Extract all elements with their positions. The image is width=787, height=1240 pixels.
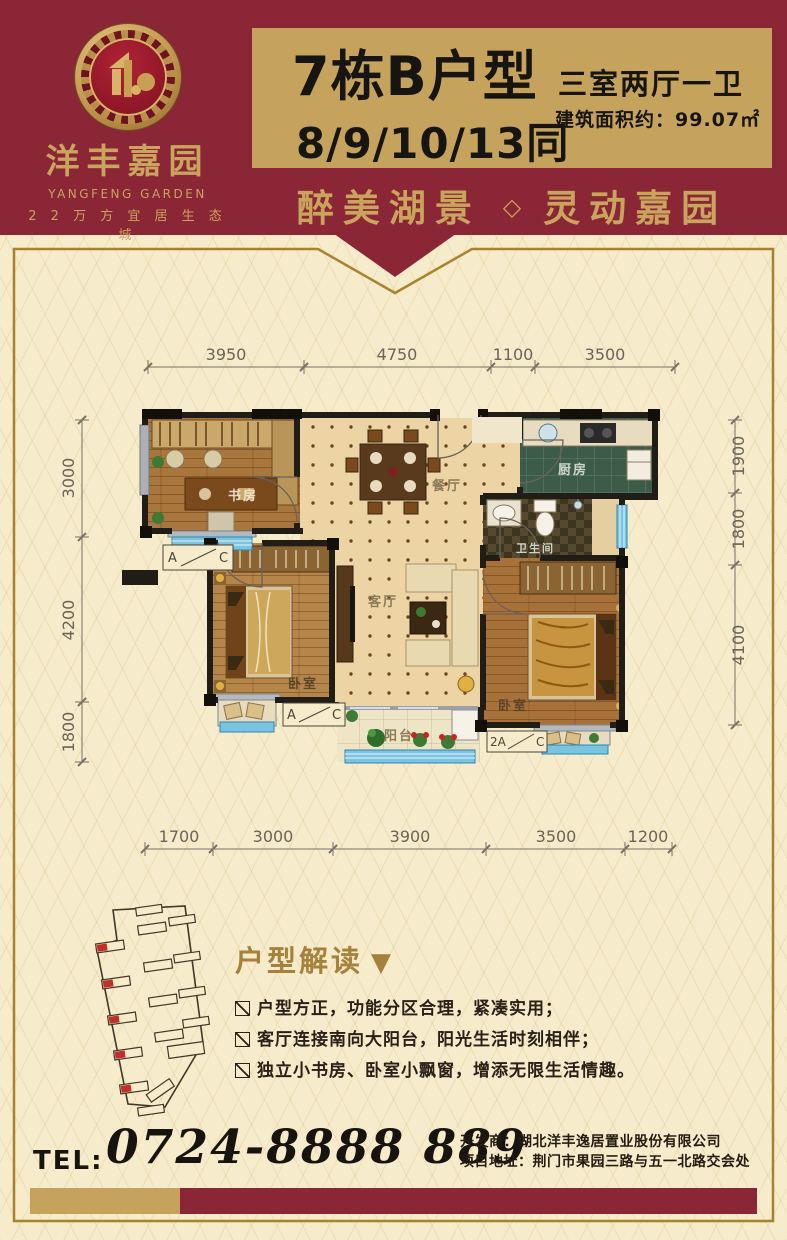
developer-line: 开发商：湖北洋丰逸居置业股份有限公司	[460, 1132, 760, 1152]
highlighted-building	[103, 979, 114, 987]
lamp-icon	[216, 682, 224, 690]
header-v-notch	[330, 231, 460, 277]
sofa-icon	[452, 570, 478, 666]
room-label-bedroom-right: 卧室	[498, 698, 528, 714]
room-label-balcony: 阳台	[384, 728, 414, 744]
dim-right: 1800	[729, 509, 748, 550]
bullet-item: 独立小书房、卧室小飘窗，增添无限生活情趣。	[235, 1060, 765, 1083]
floor-lamp-icon	[458, 676, 474, 692]
lamp-icon	[216, 574, 224, 582]
bullet-item: 客厅连接南向大阳台，阳光生活时刻相伴；	[235, 1029, 765, 1052]
dim-top: 3950	[206, 345, 247, 364]
building	[138, 922, 167, 935]
tel-label: TEL:	[33, 1146, 103, 1176]
plant-icon	[152, 456, 164, 468]
dim-bottom: 1200	[628, 827, 669, 846]
dim-right: 4100	[729, 625, 748, 666]
dim-bottom: 3000	[253, 827, 294, 846]
analysis-bullets: 户型方正，功能分区合理，紧凑实用； 客厅连接南向大阳台，阳光生活时刻相伴； 独立…	[235, 998, 765, 1083]
dim-top: 3500	[585, 345, 626, 364]
site-plan	[96, 904, 210, 1116]
dim-top: 1100	[493, 345, 534, 364]
triangle-down-icon: ▼	[371, 948, 394, 978]
sofa-icon	[406, 640, 450, 666]
window-icon	[140, 425, 149, 495]
dim-bottom: 3500	[536, 827, 577, 846]
marker-text: C	[332, 708, 341, 723]
room-label-bedroom-left: 卧室	[288, 676, 318, 692]
analysis-title-text: 户型解读	[235, 944, 363, 978]
bullet-square-icon	[235, 1063, 250, 1078]
marker-text: C	[219, 551, 228, 566]
developer-block: 开发商：湖北洋丰逸居置业股份有限公司 项目地址：荆门市果园三路与五一北路交会处	[460, 1132, 760, 1173]
bullet-text: 客厅连接南向大阳台，阳光生活时刻相伴；	[257, 1029, 599, 1052]
wardrobe-icon	[520, 562, 616, 594]
bullet-square-icon	[235, 1032, 250, 1047]
balcony-window-icon	[345, 750, 475, 763]
highlighted-building	[121, 1084, 132, 1092]
room-label-kitchen: 厨房	[558, 462, 588, 478]
bullet-item: 户型方正，功能分区合理，紧凑实用；	[235, 998, 765, 1021]
window-icon	[617, 505, 627, 548]
dim-right: 1900	[729, 436, 748, 477]
room-label-dining: 餐厅	[431, 478, 462, 494]
contact-section: TEL: 0724-8888 889 开发商：湖北洋丰逸居置业股份有限公司 项目…	[0, 1120, 787, 1190]
floor-plan: 书房 餐厅 厨房 卫生间 卧室 客厅 卧室 阳台 A C A C	[59, 345, 748, 856]
dim-left: 4200	[59, 600, 78, 641]
poster-page: 洋丰嘉园 YANGFENG GARDEN 2 2 万 方 宜 居 生 态 城 7…	[0, 0, 787, 1240]
plant-icon	[152, 512, 164, 524]
toilet-icon	[536, 512, 554, 536]
tv-icon	[350, 586, 355, 642]
room-label-bath: 卫生间	[516, 541, 555, 555]
analysis-section: 户型解读▼ 户型方正，功能分区合理，紧凑实用； 客厅连接南向大阳台，阳光生活时刻…	[235, 938, 765, 1091]
dim-bottom: 1700	[159, 827, 200, 846]
bedroom-right-furniture	[520, 562, 624, 710]
analysis-title: 户型解读▼	[235, 938, 765, 980]
sofa-icon	[406, 564, 456, 592]
marker-text: 2A	[490, 735, 507, 749]
shower-icon	[574, 501, 582, 509]
address-line: 项目地址：荆门市果园三路与五一北路交会处	[460, 1152, 760, 1172]
bullet-text: 户型方正，功能分区合理，紧凑实用；	[257, 998, 563, 1021]
sink-icon	[539, 424, 557, 442]
room-label-study: 书房	[228, 488, 258, 504]
fridge-icon	[627, 450, 651, 480]
marker-text: A	[168, 551, 177, 566]
bottom-bar-gold-segment	[30, 1188, 180, 1214]
entry-porch	[472, 417, 522, 443]
chair-icon	[208, 512, 234, 532]
marker-text: C	[536, 735, 544, 749]
highlighted-building	[109, 1015, 120, 1023]
highlighted-building	[97, 943, 108, 951]
dim-left: 1800	[59, 712, 78, 753]
bullet-text: 独立小书房、卧室小飘窗，增添无限生活情趣。	[257, 1060, 635, 1083]
highlighted-building	[115, 1050, 126, 1058]
room-label-living: 客厅	[368, 594, 398, 610]
dim-bottom: 3900	[390, 827, 431, 846]
dim-left: 3000	[59, 458, 78, 499]
bottom-bar	[30, 1188, 757, 1214]
dim-top: 4750	[377, 345, 418, 364]
bullet-square-icon	[235, 1001, 250, 1016]
marker-text: A	[287, 708, 296, 723]
coffee-table-icon	[410, 602, 446, 634]
